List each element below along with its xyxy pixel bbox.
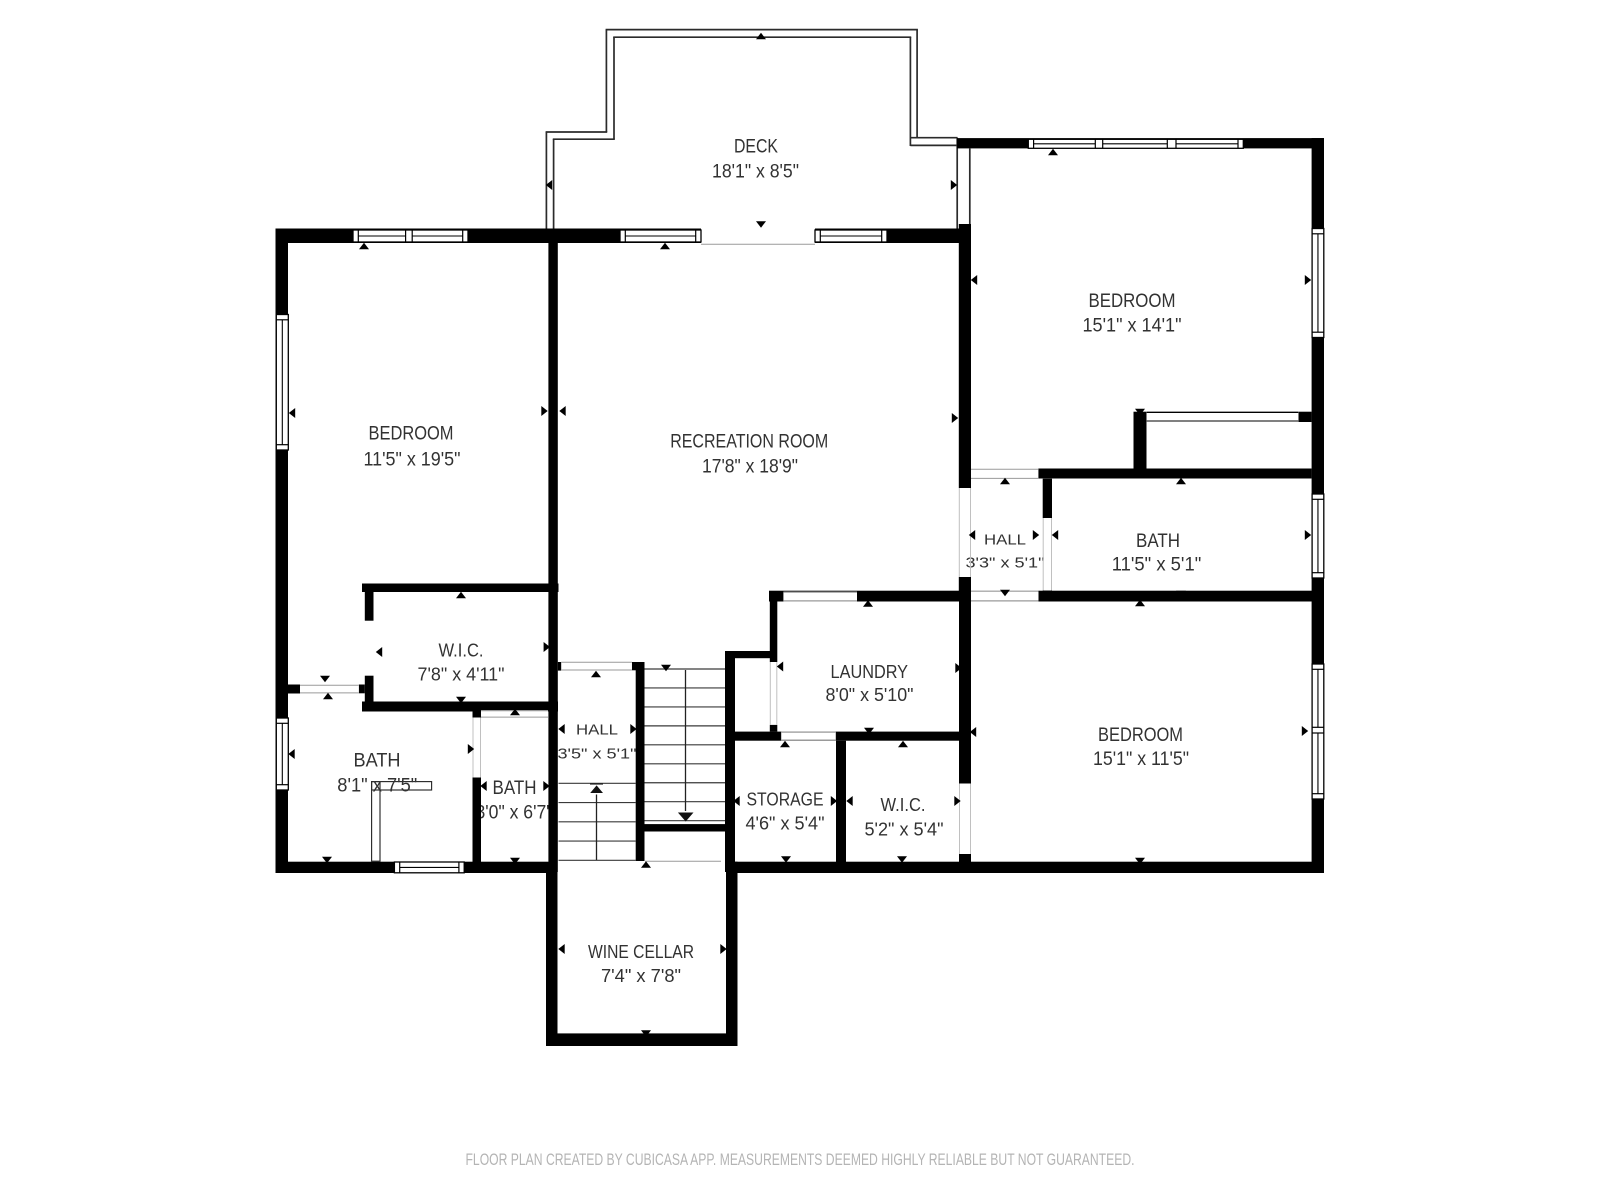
svg-text:7'8" x 4'11": 7'8" x 4'11" (418, 664, 505, 685)
svg-text:11'5" x 19'5": 11'5" x 19'5" (364, 450, 461, 471)
svg-text:WINE CELLAR: WINE CELLAR (588, 941, 694, 962)
svg-text:15'1" x 14'1": 15'1" x 14'1" (1083, 316, 1182, 337)
svg-text:15'1" x 11'5": 15'1" x 11'5" (1093, 749, 1189, 770)
svg-text:BATH: BATH (493, 778, 537, 799)
svg-text:BEDROOM: BEDROOM (1098, 725, 1183, 746)
svg-text:HALL: HALL (984, 531, 1026, 548)
svg-text:FLOOR PLAN CREATED BY CUBICASA: FLOOR PLAN CREATED BY CUBICASA APP. MEAS… (466, 1150, 1135, 1169)
svg-text:11'5" x 5'1": 11'5" x 5'1" (1112, 555, 1202, 576)
svg-text:BEDROOM: BEDROOM (369, 424, 454, 445)
svg-text:BATH: BATH (1136, 531, 1180, 552)
svg-text:4'6" x 5'4": 4'6" x 5'4" (746, 813, 825, 834)
svg-text:HALL: HALL (576, 721, 618, 738)
svg-text:3'0" x 6'7": 3'0" x 6'7" (476, 803, 553, 824)
svg-text:BATH: BATH (354, 751, 401, 772)
svg-text:BEDROOM: BEDROOM (1089, 291, 1176, 312)
svg-text:5'2" x 5'4": 5'2" x 5'4" (865, 819, 944, 840)
svg-text:RECREATION ROOM: RECREATION ROOM (670, 432, 828, 453)
svg-text:18'1" x 8'5": 18'1" x 8'5" (712, 162, 799, 183)
svg-text:3'5" x 5'1": 3'5" x 5'1" (558, 745, 637, 762)
svg-text:STORAGE: STORAGE (747, 789, 824, 810)
svg-text:W.I.C.: W.I.C. (439, 640, 484, 661)
svg-text:W.I.C.: W.I.C. (881, 794, 926, 815)
svg-text:7'4" x 7'8": 7'4" x 7'8" (601, 965, 681, 986)
svg-text:17'8" x 18'9": 17'8" x 18'9" (702, 456, 798, 477)
svg-text:8'1" x 7'5": 8'1" x 7'5" (337, 775, 417, 796)
svg-text:8'0" x 5'10": 8'0" x 5'10" (826, 684, 914, 705)
svg-text:DECK: DECK (734, 137, 778, 158)
svg-text:LAUNDRY: LAUNDRY (831, 661, 909, 682)
svg-text:3'3" x 5'1": 3'3" x 5'1" (966, 554, 1045, 571)
